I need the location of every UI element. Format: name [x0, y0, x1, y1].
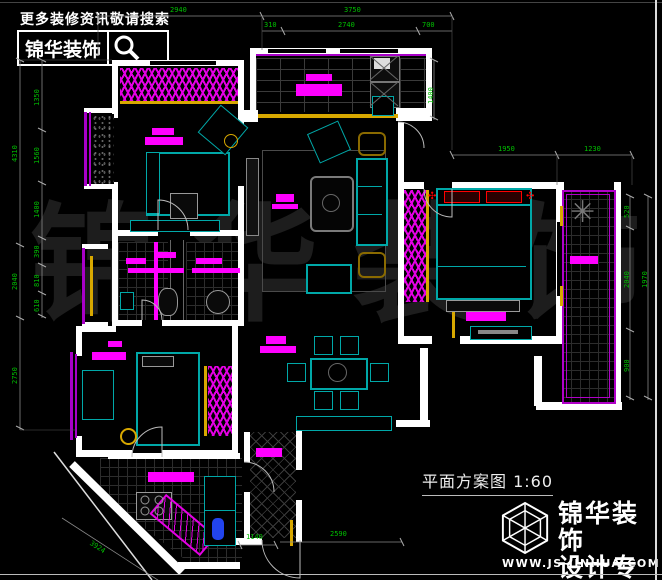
flower-decor: ✣ [526, 192, 536, 202]
door-mat [256, 448, 282, 457]
pillow [486, 191, 522, 203]
wall [420, 348, 428, 422]
header-tagline: 更多装修资讯敬请搜索 [20, 9, 170, 29]
dimension-label: 520 [624, 205, 631, 218]
end-table [358, 252, 386, 278]
dimension-label: 2750 [12, 367, 19, 384]
dimension-label: 1400 [428, 87, 435, 104]
bay-window-line [70, 352, 73, 440]
tv-cabinet [92, 352, 126, 360]
room-label-bar [152, 128, 174, 135]
room-label-bar [260, 346, 296, 353]
wall [232, 326, 238, 456]
room-label-bar [306, 74, 332, 81]
lamp [120, 428, 137, 445]
wall [396, 108, 432, 121]
room-label-bar [108, 341, 122, 347]
wall [238, 186, 244, 236]
wireframe-cube-icon [500, 500, 550, 556]
floor-plan-image: 锦 华 装 饰 更多装修资讯敬请搜索 锦华装饰 [0, 0, 662, 580]
bed-bench [446, 300, 520, 312]
wall [534, 356, 542, 406]
chair [170, 193, 198, 219]
dining-chair [314, 336, 333, 355]
window [340, 48, 398, 54]
desk [82, 370, 114, 420]
dining-chair [314, 391, 333, 410]
dimension-label: 4310 [12, 145, 19, 162]
border-line [0, 574, 662, 575]
window [268, 48, 326, 54]
brand-name: 锦华装饰 [19, 35, 107, 62]
plant-icon: ✳ [570, 196, 604, 230]
counter [148, 472, 194, 482]
blanket-line [438, 266, 526, 267]
logo-brand: 锦华装饰 [558, 500, 662, 554]
window-line [252, 54, 428, 56]
room-label-bar [266, 336, 286, 344]
wall [238, 236, 244, 326]
tv-cabinet [246, 158, 259, 236]
dimension-label: 610 [34, 299, 41, 312]
door-frame [560, 206, 563, 226]
door-arc [262, 540, 300, 578]
vanity [126, 258, 146, 264]
sofa-seam [358, 214, 382, 215]
tv [478, 330, 518, 334]
dimension-label: 2590 [330, 531, 347, 538]
wall [82, 244, 108, 249]
wall [162, 450, 238, 457]
dimension-label: 2040 [12, 273, 19, 290]
dimension-label: 3750 [344, 7, 361, 14]
dining-chair [370, 363, 389, 382]
wall [112, 320, 142, 326]
wall [244, 110, 258, 122]
wall [398, 336, 432, 344]
floor-lamp [224, 134, 238, 148]
sofa-seam [358, 186, 382, 187]
dimension-label: 1140 [246, 534, 263, 541]
towel-bar [128, 268, 184, 273]
dimension-label: 1560 [34, 147, 41, 164]
room-label-bar [158, 252, 176, 258]
plan-scale-label: 平面方案图 1:60 [422, 468, 553, 496]
wall [112, 182, 118, 236]
tv-cabinet [145, 137, 183, 145]
table-decor [328, 363, 347, 382]
wall [396, 420, 430, 427]
dimension-label: 700 [422, 22, 435, 29]
border-line [655, 0, 657, 580]
dimension-label: 900 [624, 359, 631, 372]
flower-decor: ✣ [428, 192, 438, 202]
wall [76, 326, 116, 332]
dimension-label: 390 [34, 245, 41, 258]
dining-chair [340, 336, 359, 355]
dimension-label: 1230 [584, 146, 601, 153]
dimension-label: 1350 [34, 89, 41, 106]
dimension-label: 2040 [624, 271, 631, 288]
wall [76, 450, 132, 457]
sink-counter [204, 476, 236, 512]
utility-sink [372, 96, 394, 116]
sink [120, 292, 134, 310]
website-url: WWW.JS-JINHUA.COM [502, 557, 660, 570]
curtain-line [90, 256, 93, 316]
dimension-label: 3924 [88, 540, 106, 555]
dimension-label: 1400 [34, 201, 41, 218]
fridge-door [212, 518, 224, 540]
dimension-label: 2940 [170, 7, 187, 14]
dimension-label: 1950 [498, 146, 515, 153]
sideboard [296, 416, 392, 431]
washer [374, 58, 390, 69]
room-label-bar [466, 312, 506, 321]
wall [296, 430, 302, 470]
bed [436, 204, 532, 300]
dimension-label: 1970 [642, 271, 649, 288]
toilet [158, 288, 178, 316]
room-label-bar [272, 204, 298, 209]
bay-window-line [75, 354, 77, 438]
bay-window-line [84, 112, 87, 186]
door-frame [290, 520, 293, 546]
border-line [0, 2, 662, 3]
dining-chair [340, 391, 359, 410]
room-label-bar [570, 256, 598, 264]
dining-chair [287, 363, 306, 382]
low-cabinet [130, 220, 220, 232]
toilet [206, 290, 230, 314]
pillow [142, 356, 174, 367]
loveseat [306, 264, 352, 294]
room-label-bar [196, 258, 222, 264]
wardrobe-hatch [208, 366, 232, 436]
wall [398, 122, 404, 182]
wall [296, 500, 302, 542]
table-decor [322, 194, 340, 212]
end-table [358, 132, 386, 156]
bay-window-line [89, 112, 91, 186]
room-label-bar [276, 194, 294, 202]
pillow [444, 191, 480, 203]
plant-box [92, 114, 114, 184]
wardrobe-hatch [404, 190, 426, 302]
dimension-label: 2740 [338, 22, 355, 29]
dimension-label: 810 [34, 274, 41, 287]
door-frame [560, 286, 563, 306]
wardrobe-hatch [120, 68, 238, 101]
bed-headboard [146, 152, 160, 214]
bench [296, 84, 342, 96]
bay-window-line [82, 248, 85, 324]
wardrobe-front [204, 366, 207, 436]
dimension-label: 310 [264, 22, 277, 29]
window [150, 60, 216, 66]
wall [76, 326, 82, 356]
wardrobe-front [426, 190, 429, 302]
wall [178, 562, 240, 569]
sofa [356, 158, 388, 246]
towel-bar [192, 268, 240, 273]
search-icon [109, 33, 143, 63]
